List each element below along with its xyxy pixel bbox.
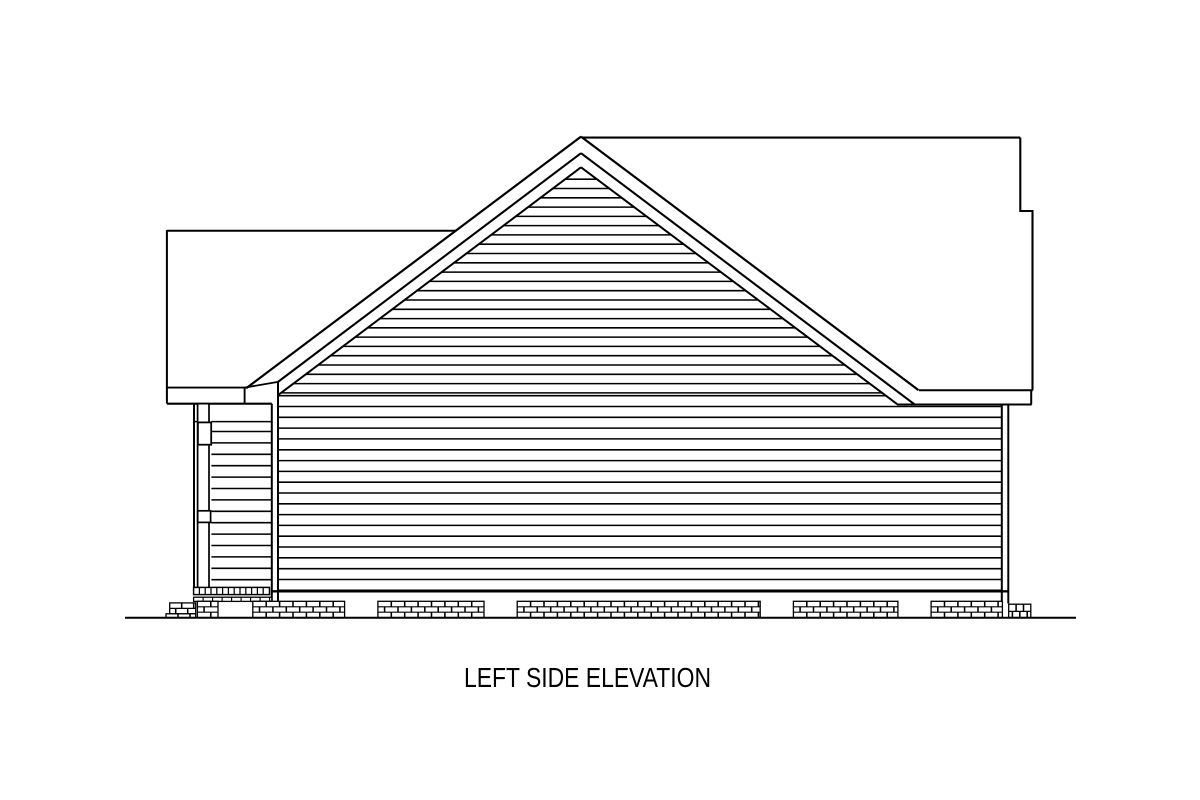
svg-text:LEFT SIDE ELEVATION: LEFT SIDE ELEVATION <box>464 662 711 693</box>
